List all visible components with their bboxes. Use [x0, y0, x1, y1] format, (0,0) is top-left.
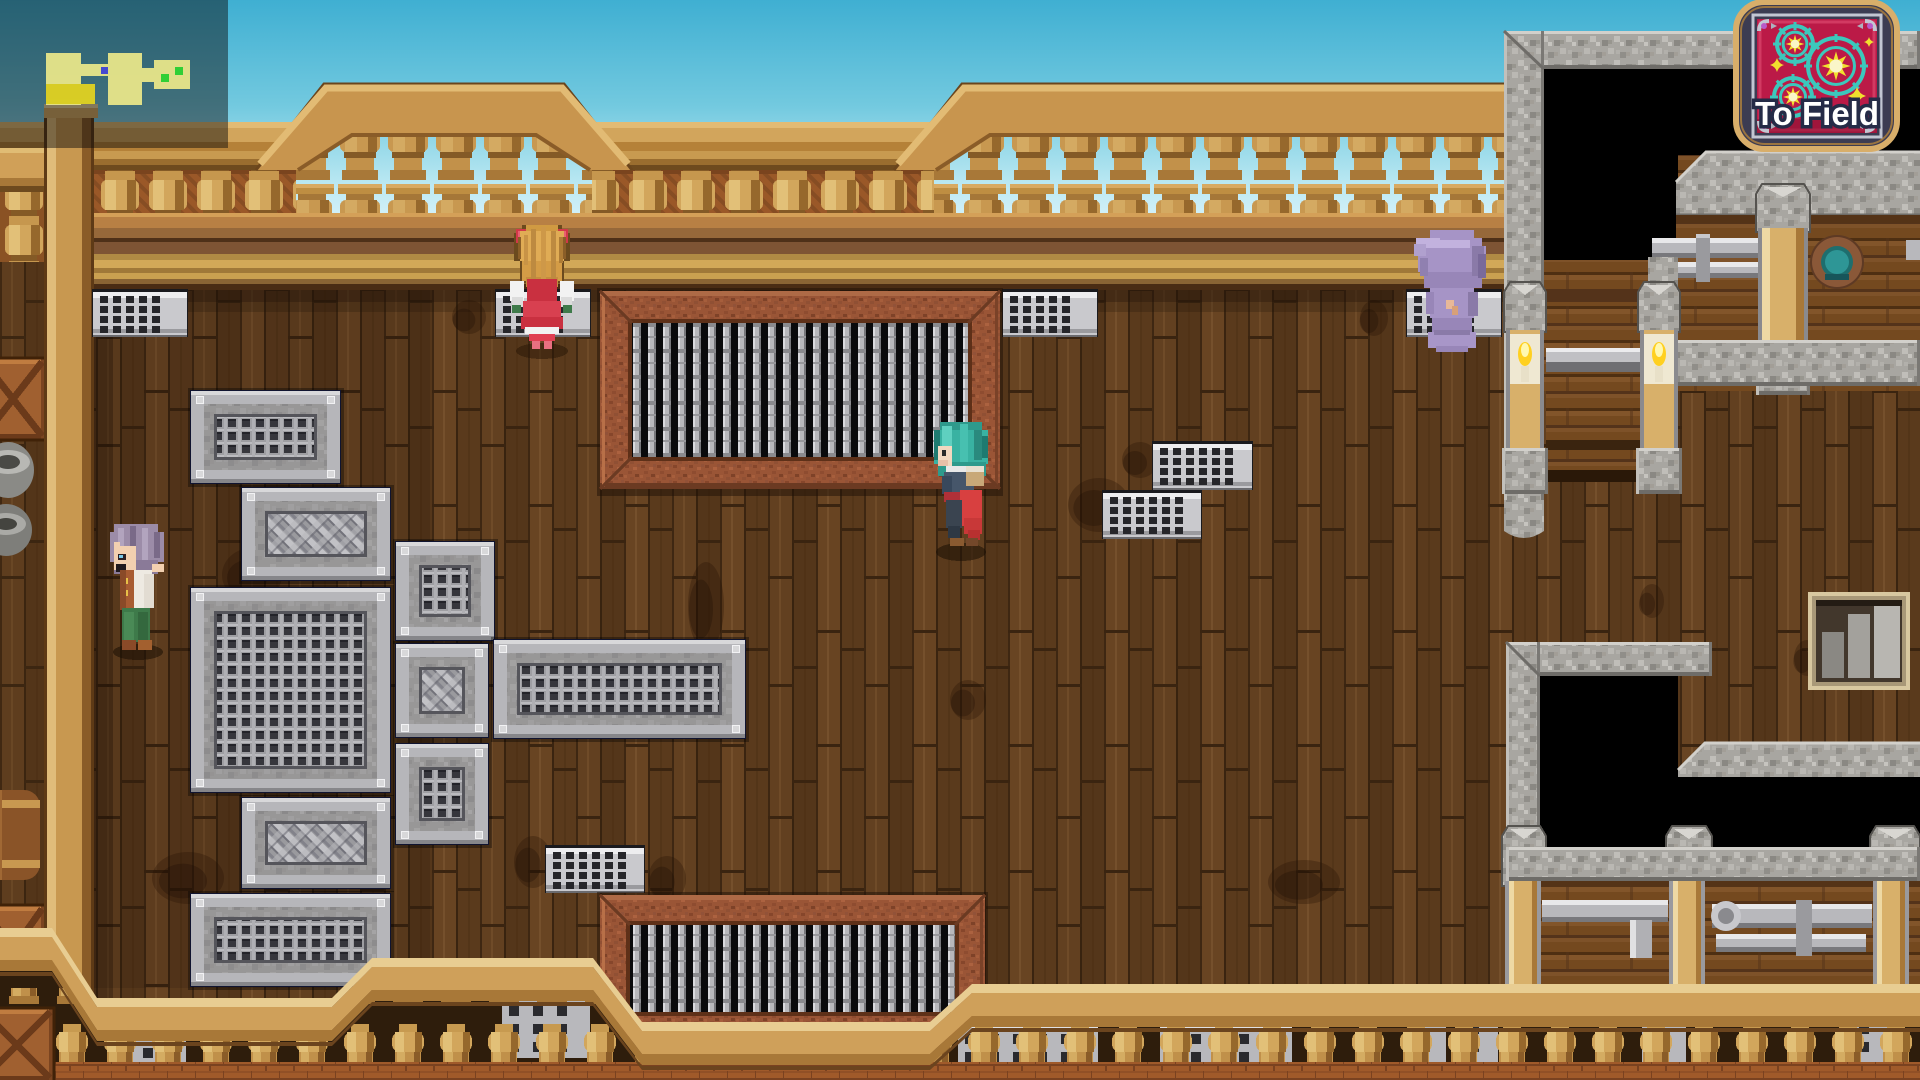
svg-text:To Field: To Field: [1755, 95, 1879, 132]
